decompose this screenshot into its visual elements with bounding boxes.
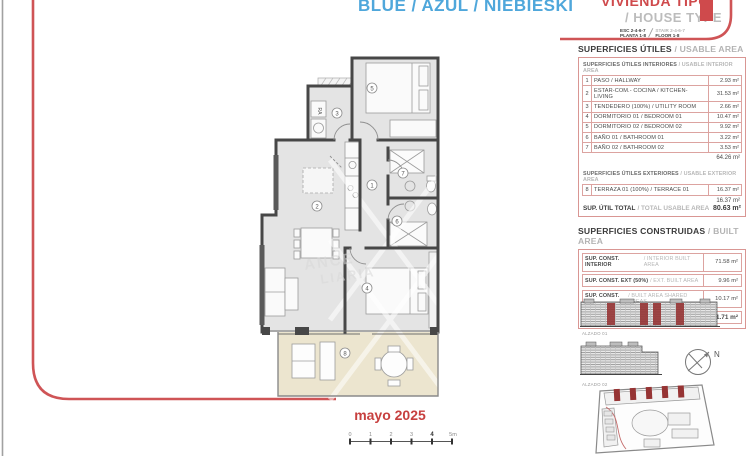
scale-tick-5: 5m [449, 432, 457, 438]
row-label-en: / INTERIOR BUILT AREA [644, 256, 701, 268]
row-value: 71.58 m² [703, 254, 741, 271]
built-heading: SUPERFICIES CONSTRUIDAS / BUILT AREA [578, 226, 746, 246]
header-title-red-text: VIVIENDA TIPO [601, 0, 711, 9]
scale-tick-0: 0 [348, 432, 351, 438]
scale-tick-4: 4 [430, 432, 434, 438]
row-label: DORMITORIO 01 / BEDROOM 01 [592, 113, 708, 122]
row-num: 2 [583, 86, 592, 101]
row-label: TENDEDERO (100%) / UTILITY ROOM [592, 102, 708, 111]
row-value: 9.92 m² [708, 123, 741, 132]
usable-heading: SUPERFICIES ÚTILES / USABLE AREA [578, 44, 746, 54]
row-num: 3 [583, 102, 592, 111]
row-value: 2.93 m² [708, 76, 741, 85]
table-row: 8 TERRAZA 01 (100%) / TERRACE 01 16.37 m… [582, 184, 742, 195]
row-label: ESTAR-COM.- COCINA / KITCHEN-LIVING [592, 86, 708, 101]
table-row: SUP. CONST. EXT (50%) / EXT. BUILT AREA … [582, 274, 742, 287]
floor-plan: 1 2 3 4 5 6 7 8 RA [250, 50, 450, 402]
slash-divider: / [648, 26, 654, 40]
floorplan-sheet: { "header": { "title_blue": "BLUE / AZUL… [0, 0, 756, 456]
scale-tick-1: 1 [369, 432, 372, 438]
usable-table: SUPERFICIES ÚTILES INTERIORES / USABLE I… [578, 57, 746, 217]
exterior-subheading: SUPERFICIES ÚTILES EXTERIORES / USABLE E… [583, 171, 741, 183]
row-label: TERRAZA 01 (100%) / TERRACE 01 [592, 185, 708, 194]
row-value: 31.53 m² [708, 86, 741, 101]
row-value: 9.96 m² [703, 275, 741, 286]
elevation-alzado-01 [580, 297, 720, 329]
row-value: 3.53 m² [708, 143, 741, 152]
row-value: 16.37 m² [708, 185, 741, 194]
scale-bar: 0 1 2 3 4 5m [340, 428, 465, 448]
compass: N [678, 344, 726, 380]
row-label: SUP. CONST. INTERIOR / INTERIOR BUILT AR… [583, 254, 703, 271]
row-num: 8 [583, 185, 592, 194]
row-num: 6 [583, 133, 592, 142]
kitchen-island [303, 168, 333, 193]
row-value: 3.22 m² [708, 133, 741, 142]
table-row: 2 ESTAR-COM.- COCINA / KITCHEN-LIVING 31… [582, 85, 742, 102]
esc-planta: ESC 2-4-6-7 PLANTA 1-8 [620, 28, 646, 39]
usable-total-value: 80.63 m² [713, 205, 741, 212]
row-num: 1 [583, 76, 592, 85]
interior-subheading: SUPERFICIES ÚTILES INTERIORES / USABLE I… [583, 62, 741, 74]
room-number-6: 6 [392, 216, 402, 226]
row-label: DORMITORIO 02 / BEDROOM 02 [592, 123, 708, 132]
date-label: mayo 2025 [348, 407, 432, 423]
built-heading-es: SUPERFICIES CONSTRUIDAS [578, 226, 705, 236]
usable-heading-en: / USABLE AREA [674, 44, 743, 54]
row-label-es: SUP. CONST. INTERIOR [585, 256, 642, 268]
header-title-red: VIVIENDA TIPO [601, 0, 711, 9]
house-type-letter-fragment [700, 0, 713, 21]
row-num: 5 [583, 123, 592, 132]
scale-tick-2: 2 [389, 432, 392, 438]
row-label: PASO / HALLWAY [592, 76, 708, 85]
row-label-es: SUP. CONST. EXT (50%) [585, 278, 648, 284]
interior-total: 64.26 m² [582, 153, 742, 161]
room-number-8: 8 [340, 348, 350, 358]
dresser-bedroom02 [390, 120, 436, 137]
area-panel: SUPERFICIES ÚTILES / USABLE AREA SUPERFI… [578, 44, 746, 329]
room-number-7: 7 [398, 168, 408, 178]
row-label: SUP. CONST. EXT (50%) / EXT. BUILT AREA [583, 275, 703, 286]
compass-n-label: N [714, 350, 720, 359]
row-num: 7 [583, 143, 592, 152]
row-label-en: / EXT. BUILT AREA [650, 278, 698, 284]
stair-floor-block: ESC 2-4-6-7 PLANTA 1-8 / STAIR 2-4-6-7 F… [620, 26, 685, 40]
stair-floor: STAIR 2-4-6-7 FLOOR 1-8 [655, 28, 685, 39]
row-value: 2.66 m² [708, 102, 741, 111]
usable-total-label-en: / TOTAL USABLE AREA [637, 205, 709, 212]
room-number-1: 1 [367, 180, 377, 190]
washer-label: RA [316, 108, 322, 116]
floor-line: FLOOR 1-8 [655, 33, 685, 38]
exterior-total: 16.37 m² [582, 196, 742, 204]
row-label: BAÑO 01 / BATHROOM 01 [592, 133, 708, 142]
header-title-blue-text: BLUE / AZUL / NIEBIESKI [358, 0, 573, 15]
table-row: SUP. CONST. INTERIOR / INTERIOR BUILT AR… [582, 253, 742, 272]
room-number-5: 5 [367, 83, 377, 93]
row-value: 10.47 m² [708, 113, 741, 122]
row-label: BAÑO 02 / BATHROOM 02 [592, 143, 708, 152]
usable-heading-es: SUPERFICIES ÚTILES [578, 44, 672, 54]
usable-total-label-es: SUP. ÚTIL TOTAL [583, 205, 635, 212]
room-number-4: 4 [362, 283, 372, 293]
elevation-alzado-02 [580, 340, 662, 380]
scale-tick-3: 3 [410, 432, 413, 438]
planta-line: PLANTA 1-8 [620, 33, 646, 38]
alzado1-label: ALZADO 01 [582, 331, 607, 336]
usable-total-row: SUP. ÚTIL TOTAL / TOTAL USABLE AREA 80.6… [582, 205, 742, 212]
site-plan [592, 383, 720, 456]
room-number-3: 3 [332, 108, 342, 118]
header-title-blue: BLUE / AZUL / NIEBIESKI [358, 0, 573, 15]
row-num: 4 [583, 113, 592, 122]
room-number-2: 2 [312, 201, 322, 211]
table-row: 7 BAÑO 02 / BATHROOM 02 3.53 m² [582, 142, 742, 153]
